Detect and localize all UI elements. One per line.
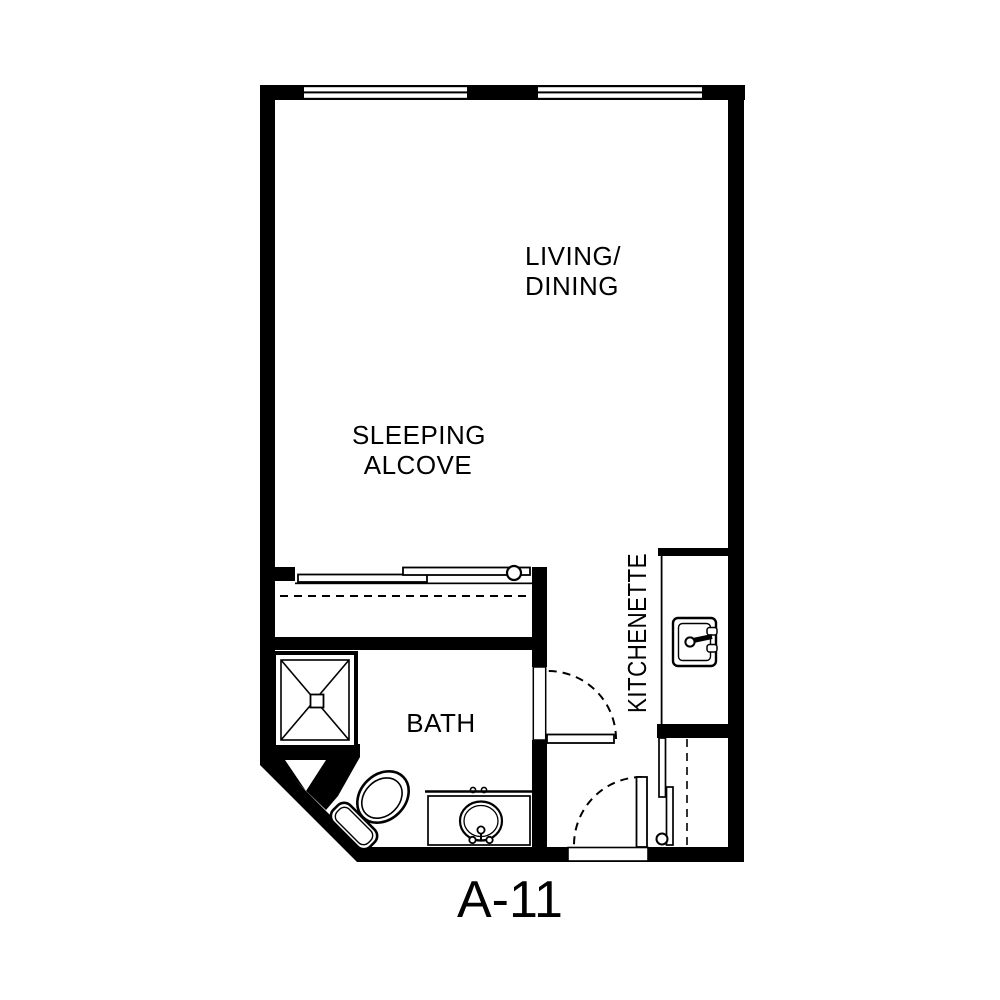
bath-door-leaf [547,735,614,744]
entry-closet-pull [657,834,668,845]
kitchenette-label: KITCHENETTE [622,553,652,713]
closet-wall-stub [275,567,295,581]
living-dining-label-line2: DINING [525,271,619,301]
living-dining-label-line1: LIVING/ [525,241,621,271]
entry-door [568,777,648,861]
bottom-wall [357,847,744,862]
kitchenette-counter [661,556,717,724]
entry-door-leaf [637,777,648,847]
window-right [538,85,702,100]
counter-bottom-wall-bar [657,724,728,738]
counter-left-edge [661,556,663,724]
window-left [304,85,467,100]
floor-plan-page: LIVING/ DINING SLEEPING ALCOVE BATH KITC… [0,0,1000,1000]
sink-faucet [477,826,484,833]
bath-door [533,667,616,743]
entry-closet-panel-back [659,738,666,797]
sleeping-alcove-label-line1: SLEEPING [352,420,486,450]
right-wall [728,85,744,862]
vanity-sink [425,787,533,845]
floor-plan-svg: LIVING/ DINING SLEEPING ALCOVE BATH KITC… [0,0,1000,1000]
bath-east-wall-upper [532,567,547,667]
bath-east-wall-lower [532,740,547,862]
bath-label: BATH [406,708,475,738]
kitchen-faucet-tab-top [707,628,717,636]
entry-closet-bypass-doors [657,738,688,845]
closet-door-pull [507,566,521,580]
entry-threshold [568,848,648,862]
kitchen-faucet-base [685,637,694,646]
sleeping-alcove-label-line2: ALCOVE [364,450,473,480]
bath-door-swing-arc [548,671,616,739]
shower [274,653,356,747]
shower-drain [311,695,324,708]
unit-label: A-11 [457,871,563,929]
kitchen-faucet-tab-bottom [707,645,717,653]
bath-north-wall [260,637,547,650]
closet-bypass-doors [280,566,532,596]
entry-door-swing-arc [574,777,642,845]
counter-top-wall-bar [658,548,728,556]
